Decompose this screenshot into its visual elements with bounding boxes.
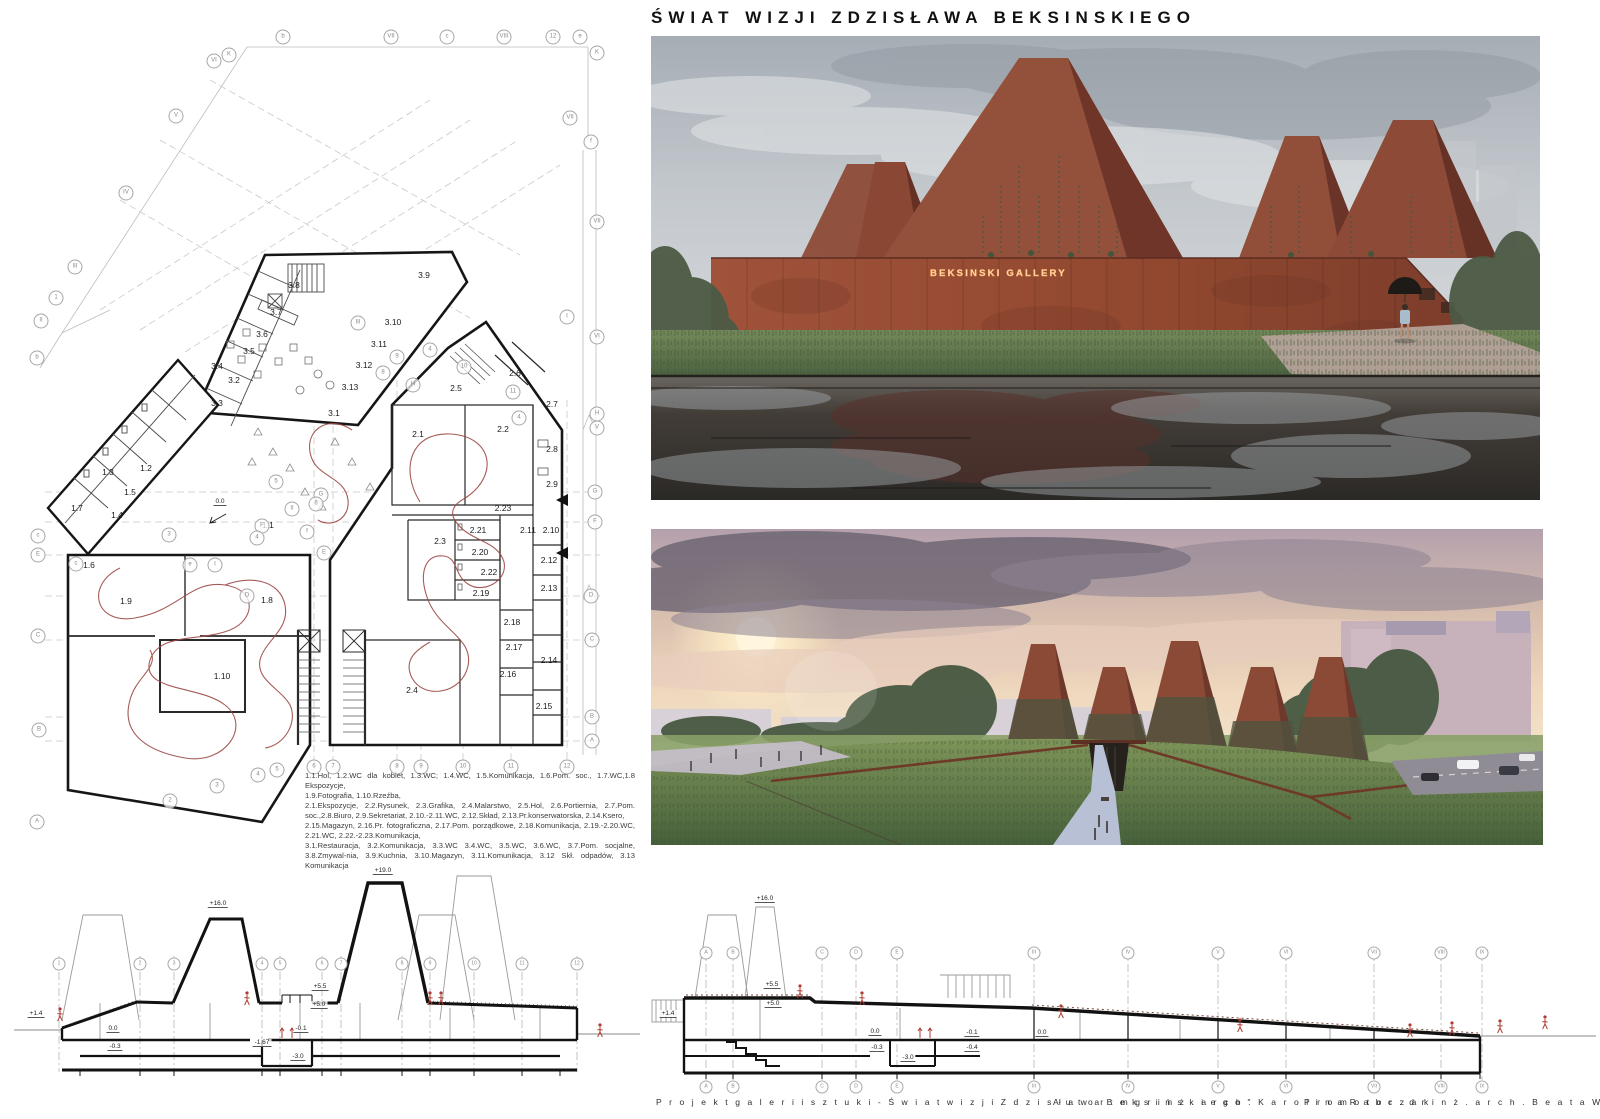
- gallery-sign: BEKSINSKI GALLERY: [930, 268, 1067, 279]
- board-title: ŚWIAT WIZJI ZDZISŁAWA BEKSINSKIEGO: [651, 8, 1196, 28]
- section-drawing-left: 123456789101112 +16.0+19.0+5.5+5.00.0-0.…: [0, 845, 648, 1095]
- project-caption: P r o j e k t g a l e r i i s z t u k i …: [648, 1093, 1598, 1115]
- level-mark: +5.5: [312, 983, 329, 991]
- floor-plan: 3.83.93.73.103.63.113.53.123.43.23.133.3…: [0, 0, 648, 840]
- legend-line: 2.15.Magazyn, 2.16.Pr. fotograficzna, 2.…: [305, 821, 635, 841]
- level-mark: +1.4: [28, 1010, 45, 1018]
- legend-line: 1.1.Hol, 1.2.WC dla kobiet, 1.3.WC; 1.4.…: [305, 771, 635, 791]
- level-mark: -0.1: [964, 1029, 979, 1037]
- level-mark: +5.0: [311, 1001, 328, 1009]
- render-waterfront: BEKSINSKI GALLERY: [651, 36, 1540, 500]
- water: [651, 376, 1540, 500]
- level-mark: +5.0: [765, 1000, 782, 1008]
- level-mark: -0.4: [964, 1044, 979, 1052]
- level-mark: +5.5: [764, 981, 781, 989]
- level-mark: 0.0: [106, 1025, 119, 1033]
- level-mark: +19.0: [373, 867, 393, 875]
- legend-line: 1.9.Fotografia, 1.10.Rzeźba,: [305, 791, 635, 801]
- presentation-board: 3.83.93.73.103.63.113.53.123.43.23.133.3…: [0, 0, 1600, 1119]
- level-mark: -0.3: [869, 1044, 884, 1052]
- legend-line: 2.1.Ekspozycje, 2.2.Rysunek, 2.3.Grafika…: [305, 801, 635, 821]
- level-mark: 0.0: [868, 1028, 881, 1036]
- level-mark: -0.1: [293, 1025, 308, 1033]
- level-mark: 0.0: [213, 498, 226, 506]
- level-mark: 0.0: [1035, 1029, 1048, 1037]
- render-landscape: [651, 529, 1543, 845]
- level-mark: -3.0: [290, 1053, 305, 1061]
- level-mark: -1.67: [253, 1039, 272, 1047]
- render-waterfront-image: BEKSINSKI GALLERY: [651, 36, 1540, 500]
- level-mark: +16.0: [755, 895, 775, 903]
- caption-promoter: P r o m o t o r : d r i n ż . a r c h . …: [1304, 1097, 1600, 1107]
- level-mark: +16.0: [208, 900, 228, 908]
- level-mark: +1.4: [660, 1010, 677, 1018]
- level-mark: -0.3: [107, 1043, 122, 1051]
- section-drawing-right: ABCDEIIIIVVVIVIIVIIIIX ABCDEIIIIVVVIVIIV…: [648, 870, 1600, 1119]
- render-landscape-image: [651, 529, 1543, 845]
- level-mark: -3.0: [900, 1054, 915, 1062]
